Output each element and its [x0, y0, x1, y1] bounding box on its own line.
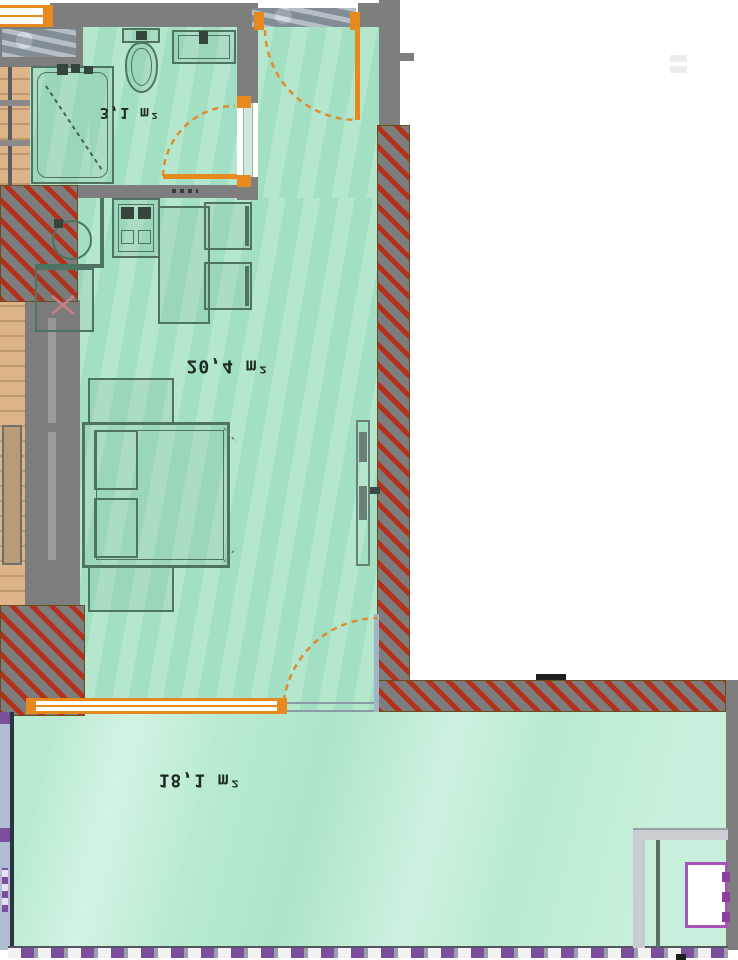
shower-tray: [37, 72, 108, 178]
terrace-partition-v: [633, 840, 645, 948]
neighbour-tick-1: [0, 100, 30, 106]
shaft-box-dash: [722, 912, 730, 922]
neighbour-wall-line: [8, 65, 12, 185]
wall-mark: [536, 674, 566, 680]
wall-hall-right: [379, 0, 400, 127]
chair-backrest: [245, 266, 249, 306]
radiator-segment: [359, 486, 367, 520]
bathroom-door-jamb: [243, 103, 253, 177]
railing-icon: [8, 946, 728, 958]
entry-shaft-stone-texture: [2, 29, 76, 57]
toilet-flush-icon: [136, 31, 147, 40]
window-top-left-cap: [43, 5, 53, 27]
wall-left-panel-1: [48, 318, 56, 423]
entrance-hinge-cap-left: [254, 12, 264, 30]
sink-tap-icon: [199, 31, 208, 44]
burner-icon: [138, 207, 151, 219]
bathroom-area-label: 3,1 m²: [100, 104, 160, 122]
burner-icon: [121, 230, 134, 244]
shaft-box-dash: [722, 872, 730, 882]
terrace-mark: [676, 954, 686, 960]
radiator-pipe: [370, 487, 380, 494]
railing-dashes-left: [2, 868, 8, 912]
wall-top-left: [50, 3, 258, 27]
terrace-door-threshold: [287, 702, 379, 712]
nightstand-icon: [88, 378, 174, 424]
wall-bathroom-right-upper: [237, 27, 258, 103]
pillow-icon: [94, 430, 138, 490]
wall-left-panel-2: [48, 432, 56, 560]
faint-smudge: [670, 66, 687, 73]
shower-valve-icon: [71, 64, 80, 73]
shower-head-icon: [84, 66, 93, 74]
entrance-door-leaf: [355, 28, 360, 120]
terrace-partition-h: [633, 828, 728, 840]
chair-backrest: [245, 206, 249, 246]
kitchen-tap-icon: [54, 219, 63, 228]
kitchen-counter-edge-v: [100, 198, 104, 264]
dimension-marks: [172, 189, 198, 193]
terrace-floor: [8, 712, 728, 948]
neighbour-wood-strip-top: [0, 65, 30, 185]
terrace-left-frame: [10, 712, 14, 950]
shaft-box-dash: [722, 892, 730, 902]
neighbour-window-block: [2, 425, 22, 565]
wall-stub-right: [398, 53, 414, 61]
terrace-door-leaf: [374, 614, 379, 712]
entrance-threshold-stone: [252, 8, 356, 27]
hallway-floor: [258, 27, 379, 202]
window-terrace: [26, 698, 287, 714]
pillow-icon: [94, 498, 138, 558]
faint-smudge: [670, 55, 687, 62]
bathroom-door-leaf: [163, 174, 237, 179]
window-terrace-cap-right: [277, 698, 287, 714]
nightstand-icon: [88, 566, 174, 612]
table-icon: [158, 206, 210, 324]
toilet-bowl-inner: [131, 48, 152, 86]
railing-post: [0, 712, 10, 724]
burner-icon: [138, 230, 151, 244]
burner-icon: [121, 207, 134, 219]
hatch-wall-right: [377, 125, 410, 684]
radiator-segment: [359, 432, 367, 462]
window-terrace-cap-left: [26, 698, 36, 714]
neighbour-tick-2: [0, 140, 30, 146]
shower-valve-icon: [57, 64, 68, 75]
hatch-wall-bottom: [377, 680, 726, 712]
terrace-partition-line: [656, 840, 660, 948]
bath-door-cap-top: [237, 96, 251, 108]
living-area-label: 20,4 m²: [187, 356, 270, 377]
railing-post: [0, 828, 10, 842]
bath-door-cap-bottom: [237, 175, 251, 187]
appliance-x-icon: [35, 268, 94, 332]
floor-plan: 3,1 m² 20,4 m² 18,1 m²: [0, 0, 738, 960]
terrace-area-label: 18,1 m²: [159, 770, 242, 791]
